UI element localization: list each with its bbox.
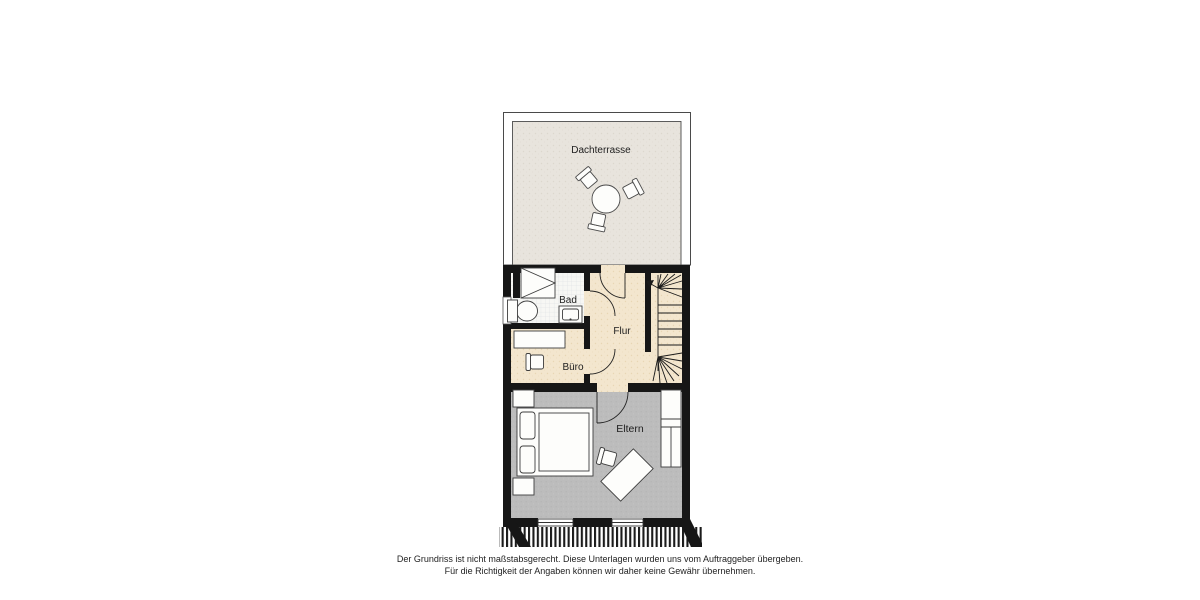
wall-segment — [513, 267, 520, 298]
floor-plan: Dachterrasse Bad Flur Büro Eltern — [0, 0, 1200, 600]
wall-segment — [584, 316, 590, 349]
door-threshold — [584, 291, 590, 316]
door-threshold — [645, 352, 651, 383]
wall-segment — [511, 323, 590, 329]
wardrobe-icon — [661, 390, 681, 467]
door-threshold — [601, 265, 625, 273]
desk-icon — [514, 331, 565, 348]
shower-icon — [521, 268, 555, 298]
disclaimer-line-1: Der Grundriss ist nicht maßstabsgerecht.… — [0, 554, 1200, 566]
nightstand-icon — [513, 478, 534, 495]
pillow — [520, 412, 535, 439]
double-bed-icon — [517, 408, 593, 476]
wall-segment — [625, 265, 690, 273]
disclaimer-line-2: Für die Richtigkeit der Angaben können w… — [0, 566, 1200, 578]
pillow — [520, 446, 535, 473]
sink-icon — [559, 306, 582, 323]
nightstand-icon — [513, 390, 534, 407]
room-label-hall: Flur — [613, 326, 631, 337]
room-label-bath: Bad — [559, 295, 577, 306]
toilet-icon — [508, 300, 538, 322]
wall-segment — [584, 273, 590, 291]
hatch-band — [499, 527, 702, 547]
floor-plan-page: Dachterrasse Bad Flur Büro Eltern Der Gr… — [0, 0, 1200, 600]
wall-segment — [682, 265, 690, 527]
disclaimer-footer: Der Grundriss ist nicht maßstabsgerecht.… — [0, 554, 1200, 577]
wall-segment — [503, 265, 511, 297]
roof-terrace-area — [504, 113, 691, 266]
office-chair-icon — [526, 354, 544, 371]
room-label-parents: Eltern — [616, 423, 644, 435]
room-label-terrace: Dachterrasse — [571, 145, 631, 156]
room-label-office: Büro — [562, 362, 584, 373]
wall-segment — [503, 324, 511, 527]
wall-segment — [573, 518, 612, 527]
door-threshold — [584, 349, 590, 374]
door-threshold — [597, 383, 628, 392]
round-table-icon — [592, 185, 620, 213]
wall-segment — [584, 374, 590, 383]
